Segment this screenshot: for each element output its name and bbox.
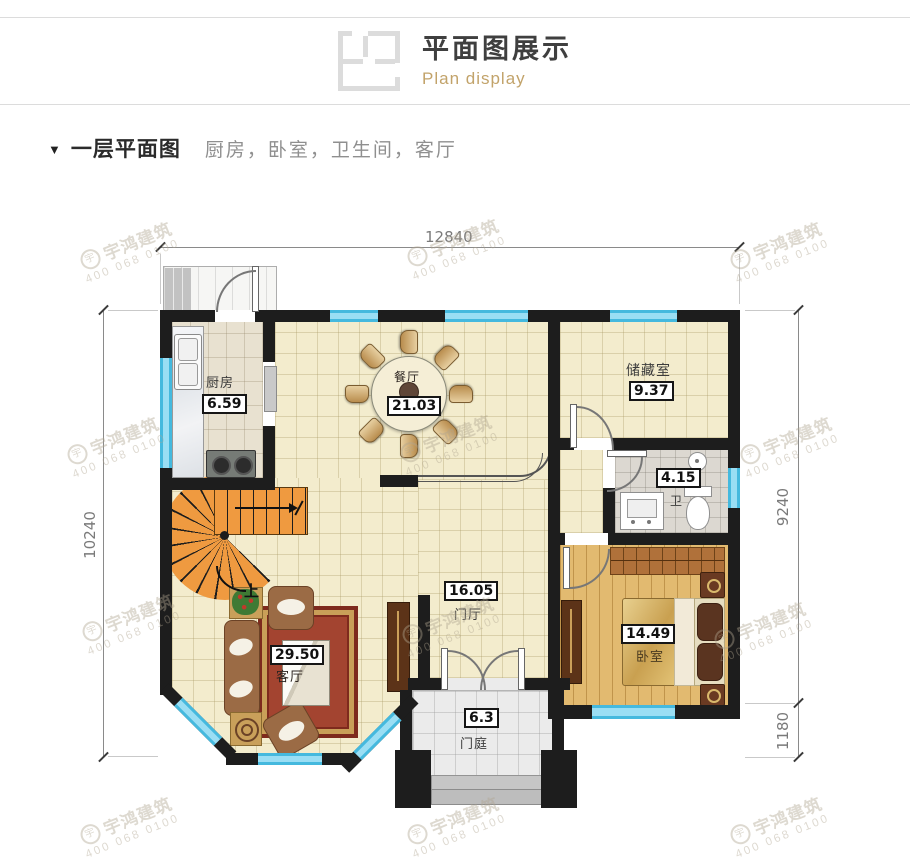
brand-logo-icon: 宇 bbox=[404, 821, 430, 847]
dim-right-lower-value: 1180 bbox=[774, 701, 792, 761]
wall-dining-stub bbox=[380, 475, 418, 487]
porch-step-2 bbox=[431, 789, 543, 805]
porch-area: 6.3 bbox=[464, 708, 499, 728]
brand-logo-icon: 宇 bbox=[77, 246, 103, 272]
porch-label: 门庭 bbox=[460, 733, 488, 752]
living-tv-cabinet bbox=[387, 602, 410, 692]
brand-phone: 400 068 0100 bbox=[734, 237, 832, 286]
nightstand-top bbox=[700, 572, 725, 598]
brand-name: 宇鸿建筑 bbox=[99, 215, 175, 265]
wall-storage-left bbox=[548, 310, 560, 545]
bath-window bbox=[728, 468, 740, 508]
bath-hall-floor bbox=[560, 450, 603, 533]
entry-door-right-leaf bbox=[518, 648, 525, 690]
bedroom-area: 14.49 bbox=[621, 624, 675, 644]
section-title: 一层平面图 bbox=[71, 133, 181, 163]
porch-pillar-right bbox=[541, 750, 577, 808]
bath-vanity bbox=[620, 492, 664, 530]
brand-logo-icon: 宇 bbox=[737, 441, 763, 467]
brand-phone: 400 068 0100 bbox=[744, 432, 842, 481]
foyer-floor bbox=[418, 480, 548, 678]
brand-logo-icon: 宇 bbox=[79, 618, 105, 644]
wall-foyer-left bbox=[418, 595, 430, 690]
armchair-top bbox=[268, 586, 314, 630]
brand-watermark: 宇宇鸿建筑400 068 0100 bbox=[725, 789, 832, 861]
header-text: 平面图展示 Plan display bbox=[422, 33, 572, 88]
sofa-cushion bbox=[227, 678, 255, 701]
dining-area: 21.03 bbox=[387, 396, 441, 416]
archway-line-inner bbox=[413, 453, 543, 482]
dim-left-line bbox=[103, 310, 104, 757]
brand-name: 宇鸿建筑 bbox=[99, 790, 175, 840]
kitchen-window bbox=[160, 358, 172, 468]
storage-door-leaf bbox=[570, 404, 577, 448]
bedroom-tv-cabinet bbox=[561, 600, 582, 684]
bay-window-bottom bbox=[258, 753, 322, 765]
entry-steps bbox=[165, 268, 191, 310]
floorplan-icon bbox=[338, 31, 400, 91]
plan-display-page: 平面图展示 Plan display ▼ 一层平面图 厨房，卧室，卫生间，客厅 … bbox=[0, 0, 910, 867]
entry-door-left-leaf bbox=[441, 648, 448, 690]
section-heading: ▼ 一层平面图 厨房，卧室，卫生间，客厅 bbox=[48, 133, 457, 163]
dim-right-line bbox=[798, 310, 799, 757]
wall-bath-left bbox=[603, 488, 615, 533]
nightstand-bottom bbox=[700, 684, 725, 706]
brand-phone: 400 068 0100 bbox=[71, 432, 169, 481]
brand-logo-icon: 宇 bbox=[77, 821, 103, 847]
wall-kitchen-divider-upper bbox=[263, 310, 275, 362]
brand-logo-icon: 宇 bbox=[727, 246, 753, 272]
wardrobe bbox=[610, 547, 725, 575]
brand-name: 宇鸿建筑 bbox=[749, 215, 825, 265]
brand-logo-icon: 宇 bbox=[727, 821, 753, 847]
foyer-area: 16.05 bbox=[444, 581, 498, 601]
dim-top-value: 12840 bbox=[425, 228, 473, 246]
bath-door-leaf bbox=[607, 450, 647, 457]
brand-watermark: 宇宇鸿建筑400 068 0100 bbox=[62, 409, 169, 481]
dim-top-line bbox=[160, 247, 740, 248]
sofa-main bbox=[224, 620, 260, 716]
kitchen-label: 厨房 bbox=[206, 372, 234, 391]
kitchen-fridge bbox=[264, 366, 277, 412]
section-room-list: 厨房，卧室，卫生间，客厅 bbox=[205, 135, 457, 162]
header-bottom-divider bbox=[0, 104, 910, 105]
page-header: 平面图展示 Plan display bbox=[0, 18, 910, 104]
kitchen-area: 6.59 bbox=[202, 394, 247, 414]
brand-phone: 400 068 0100 bbox=[411, 812, 509, 861]
stair-up-label: 上 bbox=[244, 580, 260, 601]
brand-watermark: 宇宇鸿建筑400 068 0100 bbox=[725, 214, 832, 286]
brand-logo-icon: 宇 bbox=[64, 441, 90, 467]
brand-name: 宇鸿建筑 bbox=[86, 410, 162, 460]
dining-window-1 bbox=[330, 310, 378, 322]
brand-watermark: 宇宇鸿建筑400 068 0100 bbox=[75, 789, 182, 861]
storage-label: 储藏室 bbox=[626, 360, 671, 380]
bedroom-window bbox=[592, 705, 675, 719]
wall-kitchen-bottom bbox=[160, 478, 275, 490]
porch-pillar-left bbox=[395, 750, 431, 808]
dining-label: 餐厅 bbox=[394, 368, 420, 385]
bedroom-label: 卧室 bbox=[636, 646, 664, 665]
wall-storage-bottom-b bbox=[612, 438, 740, 450]
pillow bbox=[697, 603, 723, 641]
kitchen-stove bbox=[206, 450, 256, 478]
brand-name: 宇鸿建筑 bbox=[749, 790, 825, 840]
foyer-label: 门厅 bbox=[454, 604, 482, 623]
kitchen-sink bbox=[174, 334, 202, 390]
stair-direction-arrow bbox=[235, 507, 291, 509]
living-label: 客厅 bbox=[276, 666, 304, 685]
side-table bbox=[230, 712, 262, 746]
stair-newel-post bbox=[220, 531, 229, 540]
storage-window bbox=[610, 310, 677, 322]
brand-phone: 400 068 0100 bbox=[734, 812, 832, 861]
wall-bedroom-top-a bbox=[548, 533, 565, 545]
bed-sheet bbox=[674, 598, 696, 686]
wall-foyer-bottom-b bbox=[519, 678, 570, 690]
dining-chair bbox=[449, 385, 473, 403]
page-title: 平面图展示 bbox=[422, 33, 572, 65]
bath-area: 4.15 bbox=[656, 468, 701, 488]
wall-porch-right bbox=[552, 690, 564, 752]
page-subtitle: Plan display bbox=[422, 69, 572, 89]
dining-chair bbox=[345, 385, 369, 403]
storage-area: 9.37 bbox=[629, 381, 674, 401]
dim-left-value: 10240 bbox=[81, 505, 99, 565]
brand-watermark: 宇宇鸿建筑400 068 0100 bbox=[735, 409, 842, 481]
bath-label: 卫 bbox=[670, 492, 683, 509]
wall-foyer-bottom-a bbox=[408, 678, 443, 690]
bed-head bbox=[694, 598, 725, 686]
brand-phone: 400 068 0100 bbox=[84, 812, 182, 861]
pillow bbox=[697, 643, 723, 681]
triangle-marker-icon: ▼ bbox=[48, 142, 61, 157]
dining-window-2 bbox=[445, 310, 528, 322]
living-area: 29.50 bbox=[270, 645, 324, 665]
toilet-bowl bbox=[686, 496, 710, 530]
bedroom-door-leaf bbox=[563, 547, 570, 589]
wall-right bbox=[728, 310, 740, 719]
dining-chair bbox=[400, 330, 418, 354]
wall-bedroom-top-b bbox=[608, 533, 740, 545]
dim-right-main-value: 9240 bbox=[774, 477, 792, 537]
sofa-cushion bbox=[227, 636, 255, 659]
